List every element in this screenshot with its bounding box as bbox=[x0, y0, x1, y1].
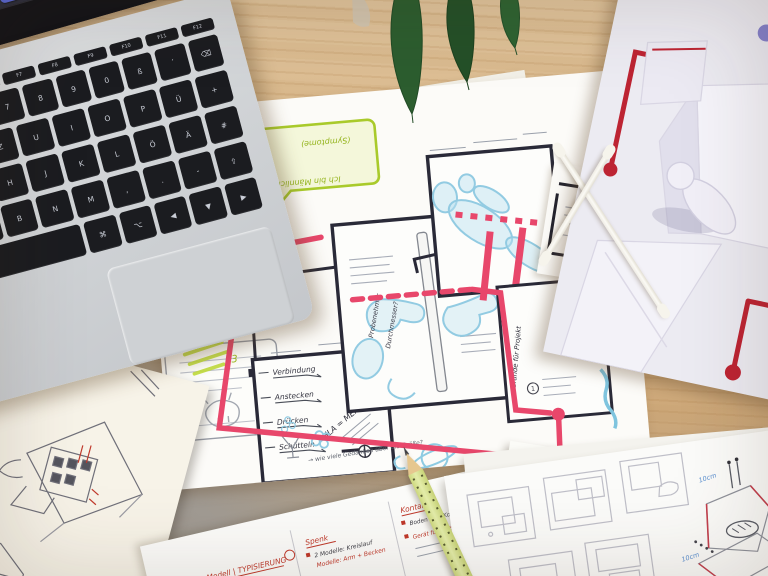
keyboard-key: ß bbox=[121, 52, 159, 91]
keyboard-key: ⌘ bbox=[83, 214, 123, 253]
simple-house-sketch bbox=[0, 534, 37, 576]
keyboard-key: Ü bbox=[159, 79, 199, 118]
keyboard-key: ´ bbox=[154, 43, 192, 82]
keyboard-key: H bbox=[0, 163, 30, 202]
dim-label-side: 10cm bbox=[680, 551, 700, 564]
wireframe-thumbnail bbox=[467, 487, 536, 547]
keyboard-key: . bbox=[142, 160, 182, 199]
keyboard-key: Ä bbox=[168, 115, 208, 154]
keyboard-key: # bbox=[204, 105, 244, 144]
keyboard-key: ⇧ bbox=[213, 141, 253, 180]
keyboard-key: U bbox=[16, 117, 56, 156]
wireframe-thumbnail bbox=[620, 453, 689, 513]
keyboard-key: K bbox=[61, 144, 101, 183]
keyboard-key: M bbox=[71, 179, 111, 218]
wireframe-thumbnail bbox=[508, 551, 579, 576]
keyboard-key: ◀ bbox=[153, 196, 193, 235]
keyboard-key: + bbox=[194, 70, 234, 109]
wireframe-thumbnail bbox=[543, 470, 612, 530]
strip-col1-header: Modell | TYPISIERUNG bbox=[206, 555, 288, 576]
plant bbox=[352, 0, 527, 137]
wireframe-thumbnail bbox=[585, 534, 656, 576]
dim-label-top: 10cm bbox=[698, 471, 718, 484]
reason-number-1: 1 bbox=[531, 385, 536, 393]
keyboard-key: ⌫ bbox=[187, 34, 225, 73]
keyboard-key: ▼ bbox=[188, 186, 228, 225]
keyboard-key: N bbox=[35, 189, 75, 228]
plant-pot-edge bbox=[352, 0, 370, 27]
keyboard-key: ▶ bbox=[224, 177, 264, 216]
keyboard-key: ⌥ bbox=[118, 205, 158, 244]
keyboard-key: I bbox=[52, 108, 92, 147]
keyboard-key: 7 bbox=[0, 87, 26, 126]
keyboard-key: 8 bbox=[22, 78, 60, 117]
keyboard-key: J bbox=[26, 153, 66, 192]
plant-leaves bbox=[391, 0, 519, 123]
red-endpoint-dot-2 bbox=[723, 363, 742, 382]
keyboard-key: , bbox=[106, 170, 146, 209]
keyboard-key: 9 bbox=[55, 69, 93, 108]
keyboard-key: B bbox=[0, 198, 40, 237]
keyboard-key: O bbox=[87, 98, 127, 137]
desk-scene: (Symptome) Ich bin Männlich 2 3 bbox=[0, 0, 768, 576]
keyboard-key: Ö bbox=[133, 124, 173, 163]
highlight-number-3: 3 bbox=[231, 354, 238, 366]
keyboard-key: - bbox=[178, 151, 218, 190]
machine-3d-sketch: 10cm 10cm Vorne bbox=[668, 452, 768, 576]
machine-house-sketch bbox=[0, 399, 158, 564]
pencil-lead-tip bbox=[402, 446, 409, 456]
keyboard-key: 0 bbox=[88, 60, 126, 99]
strip-col2-header: Spenk bbox=[304, 533, 329, 547]
keyboard-key: P bbox=[123, 89, 163, 128]
keyboard-key: L bbox=[97, 134, 137, 173]
purple-dot bbox=[756, 23, 768, 43]
